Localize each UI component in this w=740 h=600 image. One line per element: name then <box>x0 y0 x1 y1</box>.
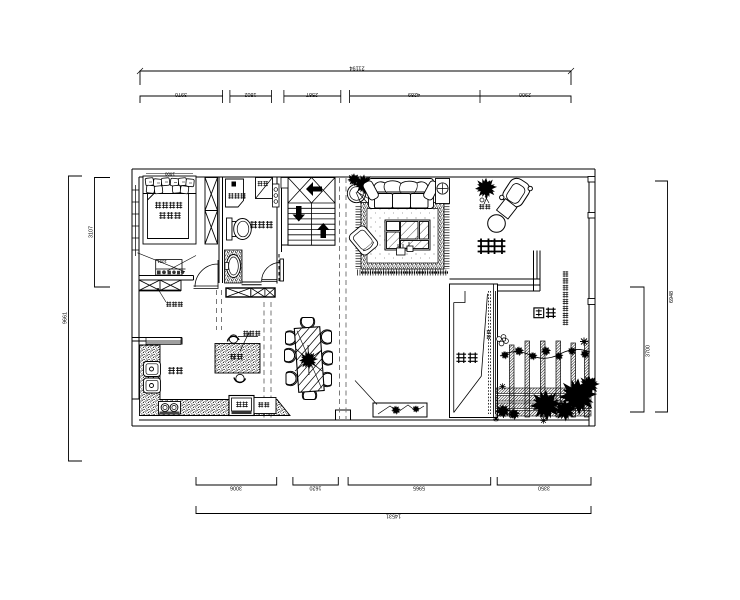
svg-text:4289: 4289 <box>408 91 420 97</box>
svg-text:1802: 1802 <box>245 91 257 97</box>
svg-text:3006: 3006 <box>230 485 242 491</box>
svg-text:1620: 1620 <box>310 485 322 491</box>
svg-text:3700: 3700 <box>646 345 652 357</box>
svg-text:3107: 3107 <box>89 226 95 238</box>
svg-text:14531: 14531 <box>386 513 401 519</box>
svg-text:2900: 2900 <box>519 91 531 97</box>
svg-text:3970: 3970 <box>175 91 187 97</box>
svg-text:9661: 9661 <box>63 312 69 324</box>
svg-text:1800: 1800 <box>164 172 175 177</box>
svg-text:5965: 5965 <box>413 485 425 491</box>
svg-text:6948: 6948 <box>669 291 675 303</box>
svg-text:1091: 1091 <box>157 259 167 264</box>
svg-text:3350: 3350 <box>538 485 550 491</box>
svg-text:2587: 2587 <box>306 91 318 97</box>
svg-text:21194: 21194 <box>349 65 364 71</box>
